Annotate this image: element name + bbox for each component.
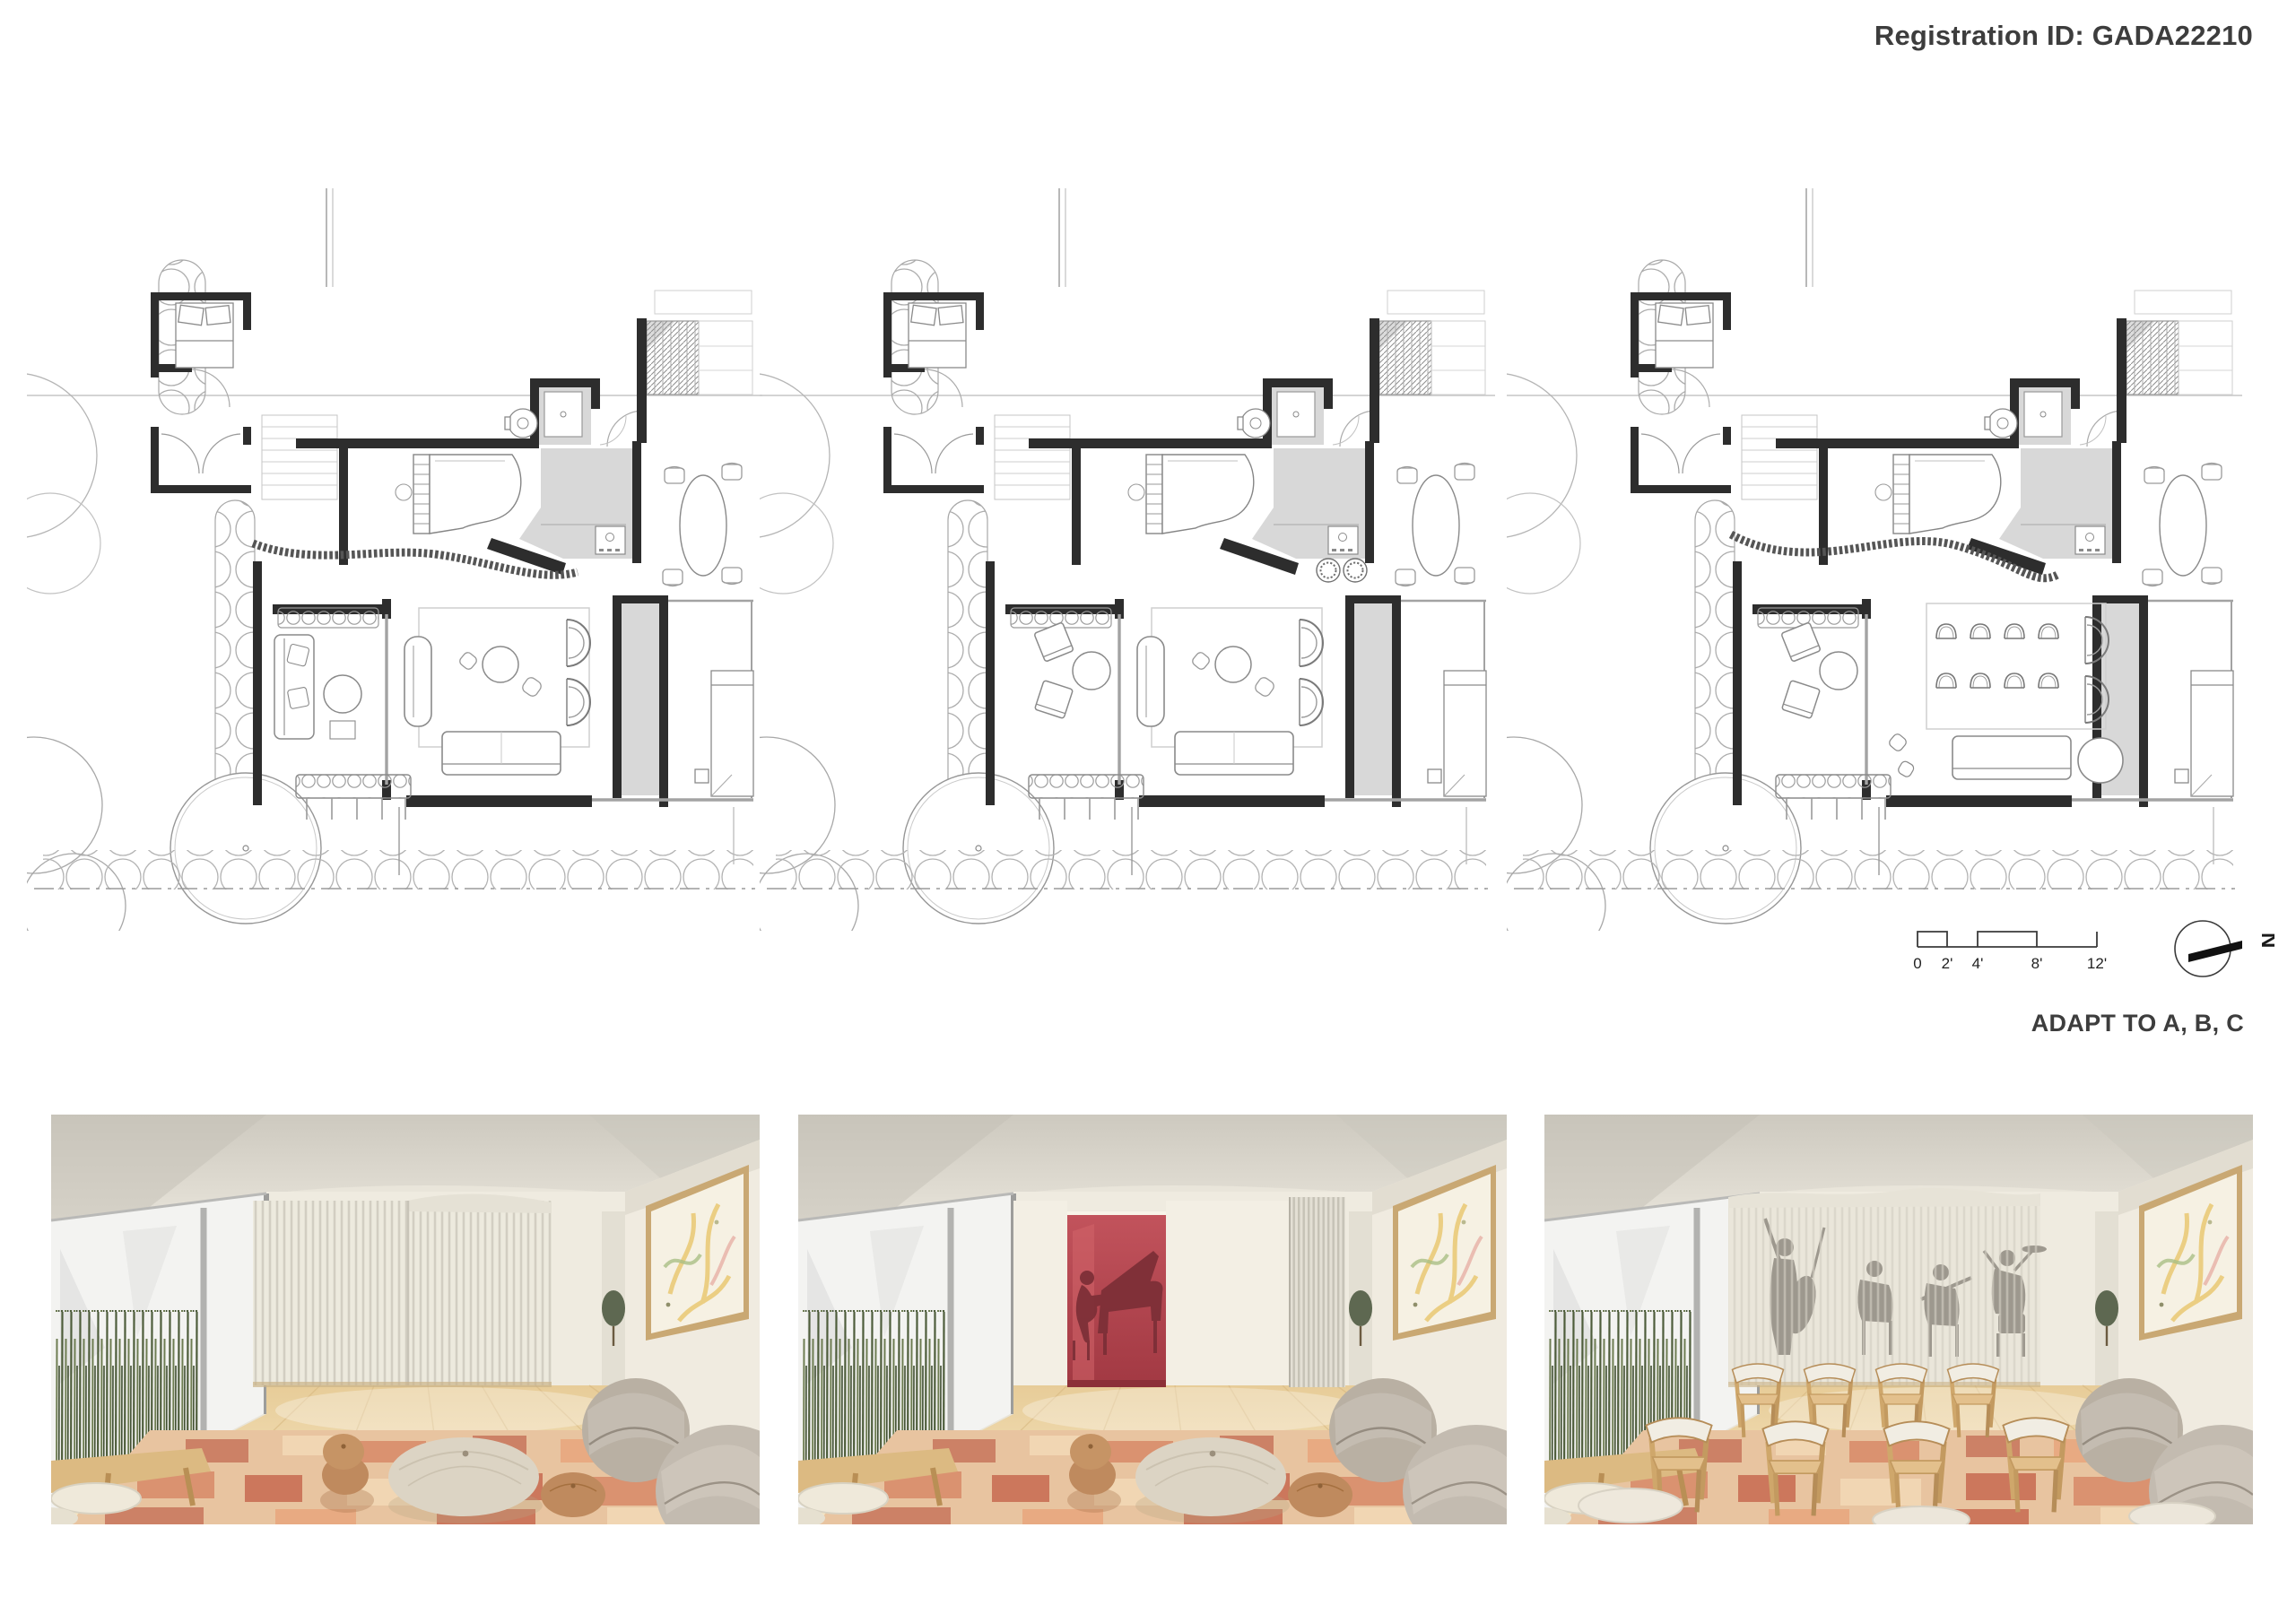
render-lounge-divider-closed bbox=[51, 1115, 760, 1524]
render-piano-alcove-open bbox=[798, 1115, 1507, 1524]
scale-tick-12: 12' bbox=[2087, 955, 2107, 972]
floor-plan-a bbox=[27, 187, 762, 931]
north-arrow-icon: N bbox=[2170, 913, 2274, 981]
floor-plan-b bbox=[760, 187, 1495, 931]
scale-tick-2: 2' bbox=[1942, 955, 1953, 972]
scale-bar: 0 2' 4' 8' 12' bbox=[1909, 920, 2115, 977]
registration-id: Registration ID: GADA22210 bbox=[1874, 20, 2253, 52]
adapt-caption: ADAPT TO A, B, C bbox=[2031, 1010, 2244, 1037]
scale-tick-8: 8' bbox=[2031, 955, 2043, 972]
render-concert-audience-rows bbox=[1544, 1115, 2253, 1524]
north-label: N bbox=[2257, 933, 2274, 948]
presentation-board: Registration ID: GADA22210 0 2' 4' 8' 12… bbox=[0, 0, 2296, 1623]
scale-tick-0: 0 bbox=[1913, 955, 1921, 972]
scale-tick-4: 4' bbox=[1972, 955, 1984, 972]
floor-plan-c bbox=[1507, 187, 2242, 931]
